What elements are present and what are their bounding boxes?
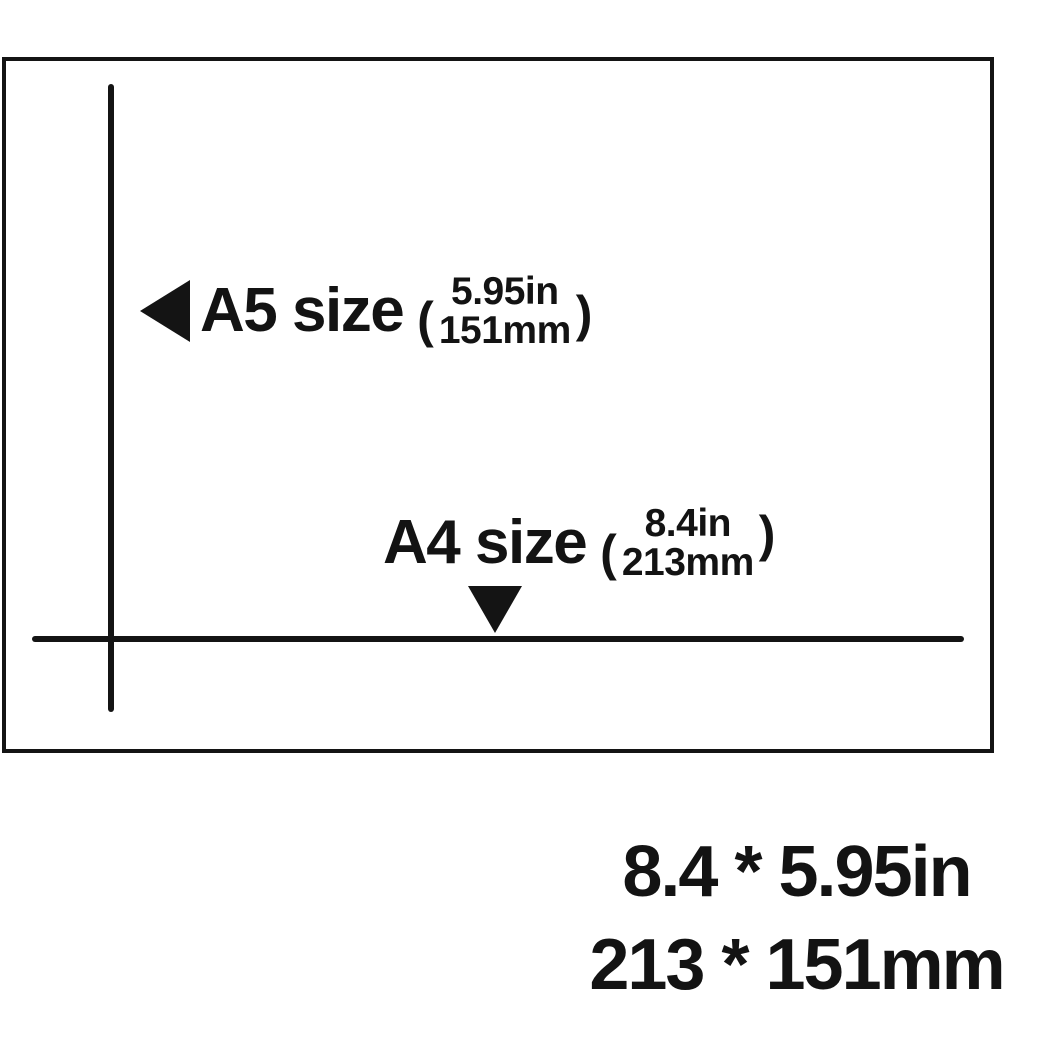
triangle-down-icon — [468, 586, 522, 633]
product-size-diagram: A5 size ( 5.95in 151mm ) A4 size ( 8.4in… — [0, 0, 1043, 1043]
a5-mm-value: 151mm — [439, 311, 571, 350]
a4-label-text: A4 size — [383, 512, 586, 574]
a5-inches-value: 5.95in — [451, 272, 559, 311]
a5-label-text: A5 size — [200, 280, 403, 342]
a4-open-paren: ( — [600, 528, 617, 578]
a4-mm-value: 213mm — [622, 543, 754, 582]
a5-open-paren: ( — [417, 295, 434, 345]
summary-inches: 8.4 * 5.95in — [550, 826, 1043, 919]
a4-size-label: A4 size ( 8.4in 213mm ) — [383, 507, 775, 579]
a5-height-dimension-line — [108, 84, 114, 712]
triangle-left-icon — [140, 280, 190, 342]
a5-measurements: 5.95in 151mm — [439, 272, 571, 350]
a5-size-label: A5 size ( 5.95in 151mm ) — [140, 275, 592, 347]
diagram-frame — [2, 57, 994, 753]
dimensions-summary: 8.4 * 5.95in 213 * 151mm — [550, 826, 1043, 1012]
a4-close-paren: ) — [759, 509, 776, 559]
a5-close-paren: ) — [576, 289, 593, 339]
a4-measurements: 8.4in 213mm — [622, 504, 754, 582]
a4-width-dimension-line — [32, 636, 964, 642]
summary-mm: 213 * 151mm — [550, 919, 1043, 1012]
a4-inches-value: 8.4in — [645, 504, 731, 543]
